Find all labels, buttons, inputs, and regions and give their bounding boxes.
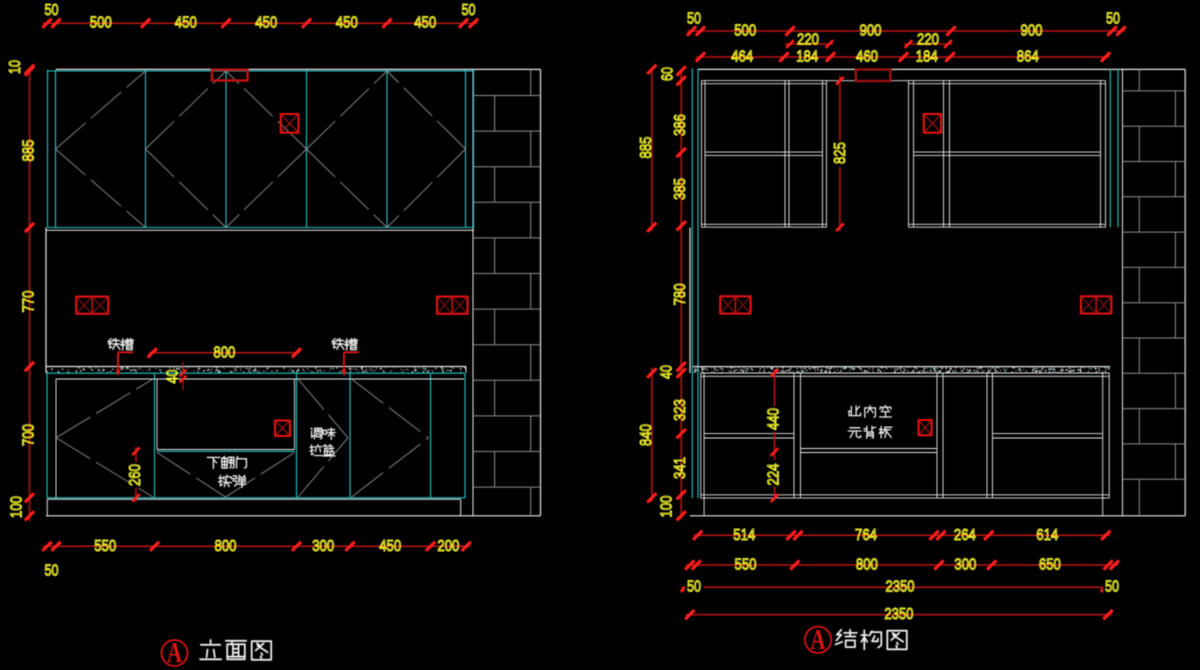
svg-text:450: 450 <box>255 15 277 32</box>
svg-text:50: 50 <box>687 11 701 28</box>
svg-text:500: 500 <box>734 23 756 40</box>
svg-text:184: 184 <box>916 49 938 66</box>
svg-text:386: 386 <box>672 114 689 136</box>
svg-text:764: 764 <box>855 527 877 544</box>
svg-text:450: 450 <box>379 538 401 555</box>
svg-text:450: 450 <box>175 15 197 32</box>
svg-text:450: 450 <box>336 15 358 32</box>
svg-text:450: 450 <box>414 15 436 32</box>
svg-text:885: 885 <box>21 140 38 162</box>
svg-text:100: 100 <box>659 495 676 517</box>
svg-text:50: 50 <box>1105 579 1119 596</box>
svg-text:10: 10 <box>7 60 24 74</box>
svg-text:184: 184 <box>796 49 818 66</box>
svg-text:40: 40 <box>165 369 182 383</box>
svg-text:770: 770 <box>21 290 38 312</box>
svg-text:100: 100 <box>8 496 25 518</box>
svg-text:550: 550 <box>94 538 116 555</box>
svg-text:700: 700 <box>21 424 38 446</box>
svg-text:825: 825 <box>832 142 849 164</box>
svg-text:864: 864 <box>1017 49 1039 66</box>
svg-text:341: 341 <box>672 457 689 479</box>
svg-text:50: 50 <box>1106 11 1120 28</box>
svg-text:650: 650 <box>1039 557 1061 574</box>
svg-text:323: 323 <box>672 399 689 421</box>
svg-text:50: 50 <box>462 2 476 19</box>
svg-text:220: 220 <box>917 32 939 49</box>
svg-text:2350: 2350 <box>886 579 915 596</box>
svg-text:614: 614 <box>1036 527 1058 544</box>
svg-text:780: 780 <box>672 283 689 305</box>
svg-text:840: 840 <box>638 424 655 446</box>
svg-text:464: 464 <box>731 49 753 66</box>
svg-text:A: A <box>167 638 183 669</box>
svg-text:885: 885 <box>638 137 655 159</box>
svg-text:385: 385 <box>672 178 689 200</box>
svg-text:300: 300 <box>312 538 334 555</box>
svg-text:440: 440 <box>766 408 783 430</box>
svg-text:900: 900 <box>1021 23 1043 40</box>
svg-text:224: 224 <box>766 463 783 485</box>
svg-text:50: 50 <box>45 563 59 580</box>
svg-text:60: 60 <box>660 67 677 81</box>
svg-text:800: 800 <box>213 344 235 361</box>
svg-text:514: 514 <box>733 527 755 544</box>
svg-text:A: A <box>811 625 827 656</box>
svg-text:300: 300 <box>954 557 976 574</box>
svg-text:50: 50 <box>45 2 59 19</box>
svg-text:220: 220 <box>797 32 819 49</box>
svg-text:800: 800 <box>215 538 237 555</box>
svg-text:900: 900 <box>860 23 882 40</box>
svg-text:460: 460 <box>856 49 878 66</box>
svg-text:500: 500 <box>90 15 112 32</box>
svg-text:260: 260 <box>127 464 144 486</box>
svg-text:800: 800 <box>856 557 878 574</box>
svg-text:550: 550 <box>735 557 757 574</box>
svg-text:40: 40 <box>659 365 676 379</box>
svg-text:264: 264 <box>954 527 976 544</box>
svg-text:200: 200 <box>437 538 459 555</box>
svg-text:2350: 2350 <box>884 606 913 623</box>
svg-text:50: 50 <box>687 579 701 596</box>
